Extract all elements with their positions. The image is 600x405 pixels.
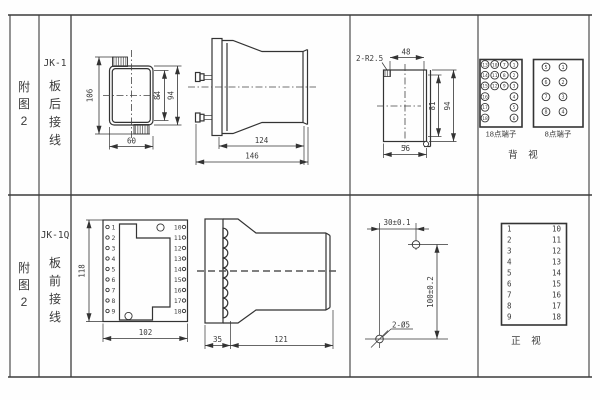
terminal-8pt-box (534, 60, 584, 128)
terminal-18pt-label: 18点端子 (486, 129, 517, 139)
table-number: 17 (552, 302, 561, 311)
terminal-number: 1 (112, 224, 116, 231)
terminal-number: 5 (112, 266, 116, 273)
dim-60: 60 (127, 137, 137, 146)
terminal-number: 4 (112, 256, 116, 263)
terminal-table-left-column: 1 2 3 4 5 6 7 8 9 (507, 225, 512, 322)
mounting-hole-top (157, 224, 164, 231)
table-number: 14 (552, 269, 562, 278)
terminal-number: 10 (174, 224, 182, 231)
dim-102: 102 (139, 328, 153, 337)
jk1q-side-view-drawing: 35 121 (197, 219, 338, 349)
table-number: 3 (507, 247, 512, 256)
terminal-pin: 5 (544, 65, 547, 71)
terminal-number: 13 (174, 256, 182, 263)
relay-mounting-diagram-sheet: 附 图 2 JK-1 板 后 接 线 106 84 94 60 (0, 0, 600, 400)
dim-30: 30±0.1 (383, 218, 410, 227)
dim-35: 35 (213, 335, 222, 344)
row2-model-label: JK-1Q 板 前 接 线 (41, 230, 70, 324)
terminal-table-right-column: 10 11 12 13 14 15 16 17 18 (552, 225, 562, 322)
terminal-pin: 8 (544, 110, 547, 116)
terminal-pin: 17 (482, 105, 488, 111)
body-bottom-profile (223, 310, 326, 323)
terminal-pin: 5 (513, 105, 516, 111)
wiring-char: 板 (49, 256, 61, 270)
dim-56: 56 (401, 144, 411, 153)
terminal-pin: 13 (482, 62, 488, 68)
terminal-pin: 3 (561, 95, 564, 101)
table-number: 11 (552, 236, 561, 245)
dim-94: 94 (167, 91, 176, 101)
case-body-bottom (222, 123, 303, 134)
terminal-pin: 4 (513, 94, 516, 100)
fig-char: 2 (21, 114, 28, 128)
wiring-char: 后 (49, 97, 61, 111)
table-number: 12 (552, 247, 561, 256)
cutout-slot-hole (423, 141, 428, 146)
model-name: JK-1 (44, 58, 67, 69)
dim-118: 118 (78, 264, 87, 278)
front-right-terminals: 10 11 12 13 14 15 16 17 18 (174, 224, 186, 315)
fig-char: 附 (18, 80, 30, 94)
dim-84: 84 (153, 91, 162, 101)
terminal-pin: 7 (544, 95, 547, 101)
dim-81: 81 (428, 101, 437, 110)
terminal-pin: 1 (561, 65, 564, 71)
terminal-pin: 6 (544, 80, 547, 86)
front-left-terminals: 1 2 3 4 5 6 7 8 9 (106, 224, 116, 315)
terminal-pin: 2 (561, 80, 564, 86)
terminal-8pt-diagram: 5 6 7 8 1 2 3 4 8点端子 (534, 60, 584, 139)
table-grid (8, 15, 592, 377)
terminal-pin: 8 (503, 73, 506, 79)
terminal-pin: 3 (513, 84, 516, 90)
front-view-label: 正 视 (511, 335, 545, 347)
table-number: 18 (552, 313, 562, 322)
body-top-profile (223, 219, 326, 233)
table-number: 8 (507, 302, 512, 311)
table-number: 10 (552, 225, 562, 234)
model-name: JK-1Q (41, 230, 70, 241)
terminal-pin: 12 (492, 84, 498, 90)
terminal-pin: 9 (503, 84, 506, 90)
mounting-hole-bottom (125, 312, 132, 319)
terminal-pin: 18 (482, 116, 488, 122)
table-number: 7 (507, 291, 512, 300)
wiring-char: 前 (49, 273, 61, 288)
terminal-number: 16 (174, 287, 182, 294)
terminal-block-top (113, 57, 128, 67)
wiring-char: 板 (49, 79, 61, 93)
fig-char: 附 (18, 261, 30, 275)
terminal-pin: 16 (482, 94, 488, 100)
dim-106: 106 (86, 88, 95, 102)
terminal-table: 1 2 3 4 5 6 7 8 9 10 11 12 13 14 15 16 1… (502, 224, 567, 348)
back-view-label: 背 视 (508, 149, 542, 161)
corner-notch-r2-5 (384, 70, 391, 77)
row1-figure-label: 附 图 2 (18, 80, 30, 128)
table-number: 16 (552, 291, 562, 300)
terminal-18pt-diagram: 13 14 15 16 17 18 10 11 12 7 8 9 1 2 3 4… (480, 60, 522, 139)
wiring-char: 线 (49, 133, 61, 147)
dim-146: 146 (245, 152, 259, 161)
terminal-number: 12 (174, 245, 182, 252)
terminal-pin: 1 (513, 62, 516, 68)
terminal-bumps (223, 228, 228, 318)
fig-char: 2 (21, 295, 28, 309)
table-number: 1 (507, 225, 512, 234)
terminal-pin: 14 (482, 73, 488, 79)
jk1-panel-cutout-drawing: 2-R2.5 48 81 94 56 (356, 48, 457, 159)
fig-char: 图 (18, 278, 30, 292)
dim-121: 121 (274, 335, 288, 344)
table-number: 9 (507, 313, 512, 322)
table-number: 6 (507, 280, 512, 289)
terminal-screw-top (196, 73, 213, 82)
terminal-pin: 11 (492, 73, 498, 79)
wiring-char: 接 (49, 114, 61, 129)
terminal-number: 9 (112, 308, 116, 315)
jk1-rear-view-drawing: 106 84 94 60 (86, 50, 182, 150)
terminal-pin: 10 (492, 62, 498, 68)
terminal-number: 3 (112, 245, 116, 252)
inner-cover-outline (120, 224, 171, 320)
dim-48: 48 (401, 48, 411, 57)
terminal-block-bottom (134, 125, 149, 135)
dim-94-cutout: 94 (443, 101, 452, 111)
note-2-d5: 2-Ø5 (392, 321, 410, 330)
row1-model-label: JK-1 板 后 接 线 (44, 58, 67, 147)
terminal-screw-bottom (196, 113, 213, 122)
terminal-pin: 2 (513, 73, 516, 79)
wiring-char: 线 (49, 310, 61, 324)
jk1-side-view-drawing: 124 146 (188, 39, 316, 166)
dim-124: 124 (255, 136, 269, 145)
drawing-canvas: 附 图 2 JK-1 板 后 接 线 106 84 94 60 (0, 0, 600, 400)
drill-pattern-drawing: 30±0.1 100±0.2 2-Ø5 (365, 218, 448, 348)
row2-figure-label: 附 图 2 (18, 261, 30, 309)
terminal-number: 8 (112, 298, 116, 305)
terminal-number: 11 (174, 235, 182, 242)
terminal-pin: 6 (513, 116, 516, 122)
terminal-number: 14 (174, 266, 182, 273)
terminal-number: 17 (174, 298, 182, 305)
note-2-r2-5: 2-R2.5 (356, 54, 383, 63)
dim-100: 100±0.2 (426, 276, 435, 308)
table-number: 13 (552, 258, 561, 267)
wiring-char: 接 (49, 291, 61, 306)
terminal-pin: 4 (561, 110, 564, 116)
table-number: 2 (507, 236, 512, 245)
jk1q-front-view-drawing: 1 2 3 4 5 6 7 8 9 10 11 12 13 14 15 16 1… (78, 220, 188, 342)
terminal-8pt-label: 8点端子 (545, 129, 572, 139)
terminal-number: 18 (174, 308, 182, 315)
terminal-number: 2 (112, 235, 116, 242)
terminal-pin: 15 (482, 84, 488, 90)
terminal-number: 15 (174, 277, 182, 284)
fig-char: 图 (18, 97, 30, 111)
table-number: 4 (507, 258, 512, 267)
table-number: 5 (507, 269, 512, 278)
table-number: 15 (552, 280, 561, 289)
terminal-number: 7 (112, 287, 116, 294)
terminal-number: 6 (112, 277, 116, 284)
case-body-top (222, 41, 303, 52)
terminal-pin: 7 (503, 62, 506, 68)
